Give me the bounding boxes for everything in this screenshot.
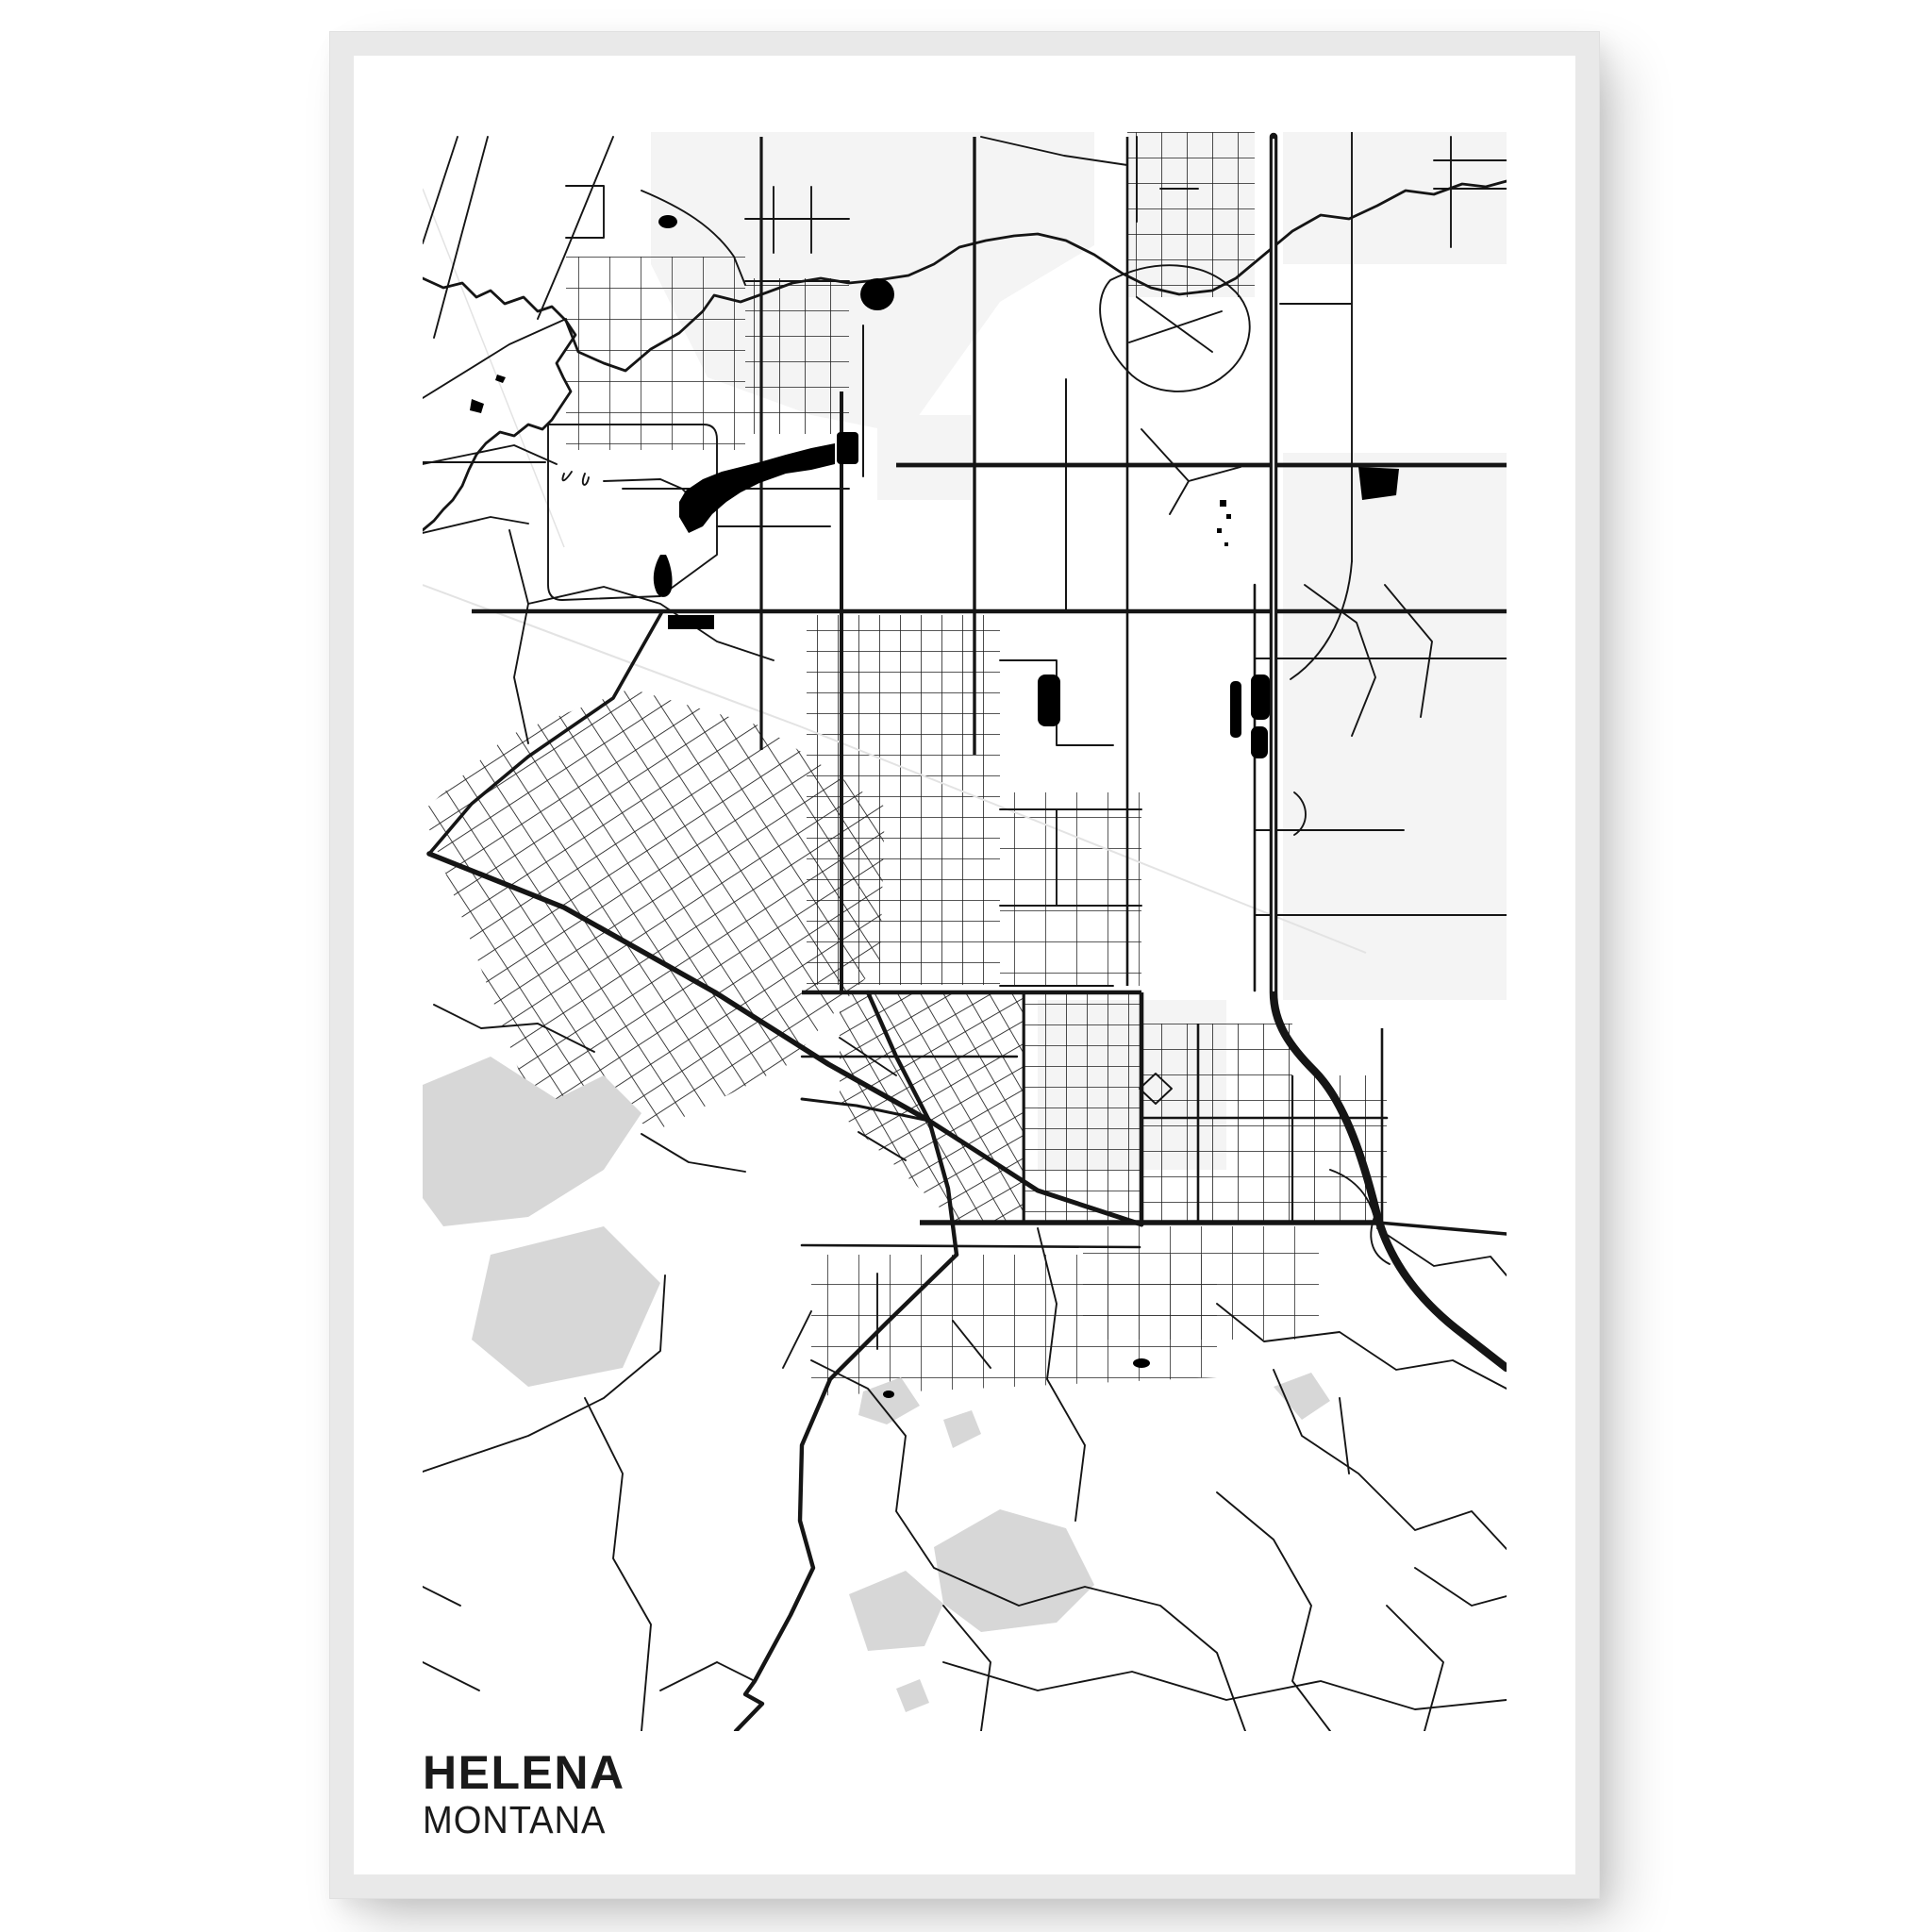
page-background: { "poster": { "title": "HELENA", "subtit… [0,0,1932,1932]
map-poster-frame: HELENA MONTANA [330,32,1599,1898]
helena-street-map-svg [423,132,1507,1731]
city-map-graphic [423,132,1507,1731]
state-subtitle: MONTANA [423,1801,611,1840]
city-title: HELENA [423,1749,625,1796]
poster-title-block: HELENA MONTANA [423,1749,625,1840]
